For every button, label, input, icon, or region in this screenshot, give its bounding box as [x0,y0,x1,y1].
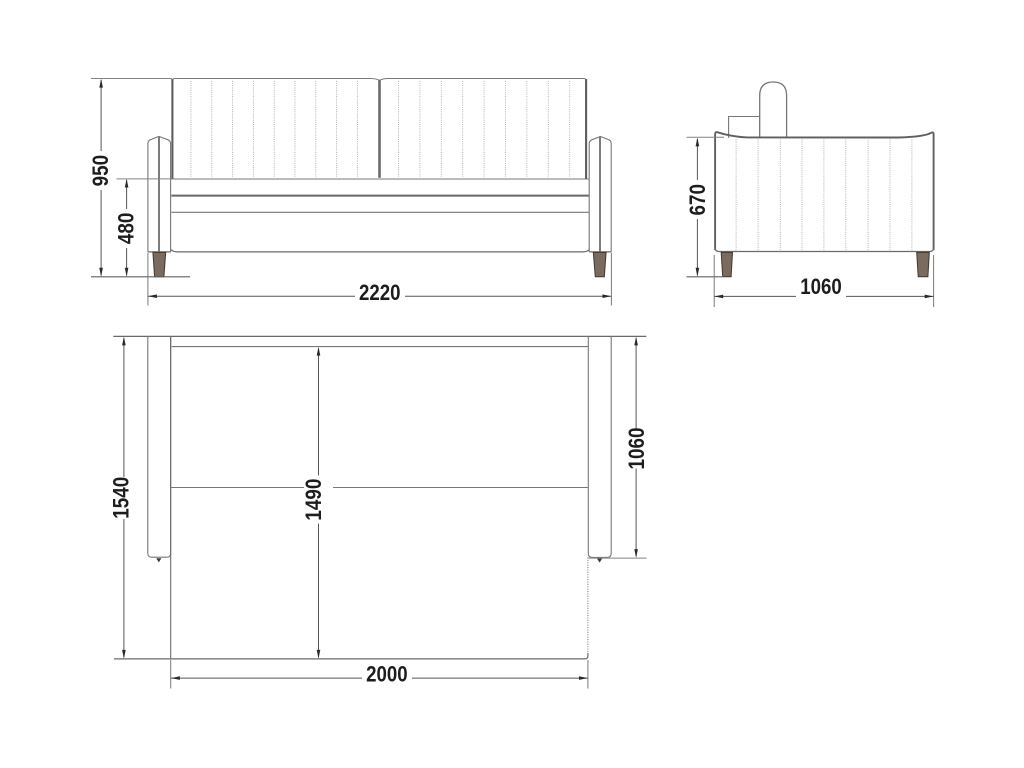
svg-text:480: 480 [114,213,139,245]
svg-text:1490: 1490 [301,479,326,521]
svg-text:670: 670 [685,184,710,216]
svg-text:1060: 1060 [624,428,649,470]
svg-text:950: 950 [88,155,113,187]
svg-text:2000: 2000 [366,661,408,686]
svg-text:1060: 1060 [800,274,842,299]
svg-text:2220: 2220 [359,280,401,305]
svg-text:1540: 1540 [108,477,133,519]
